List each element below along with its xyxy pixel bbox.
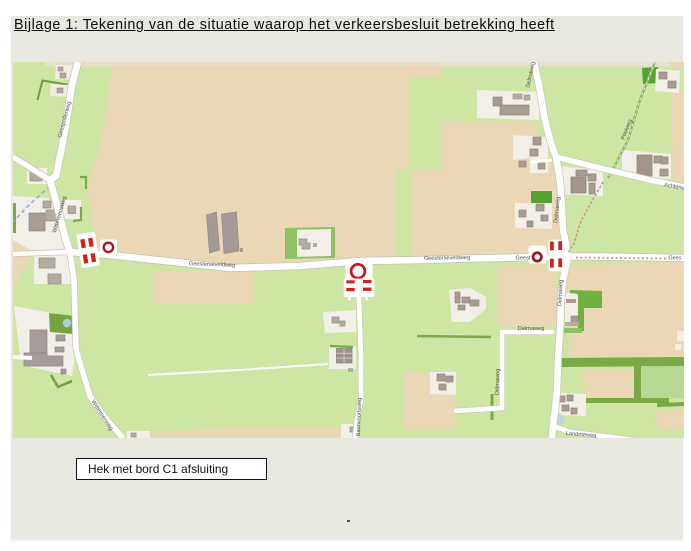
- svg-text:Delmaweg: Delmaweg: [495, 369, 502, 396]
- svg-text:Geest: Geest: [516, 256, 531, 262]
- svg-text:Landriteweg: Landriteweg: [566, 431, 597, 438]
- svg-text:Delmaweg: Delmaweg: [518, 326, 544, 332]
- svg-text:Gees: Gees: [668, 256, 682, 262]
- svg-text:Geesterseveldweg: Geesterseveldweg: [424, 255, 470, 262]
